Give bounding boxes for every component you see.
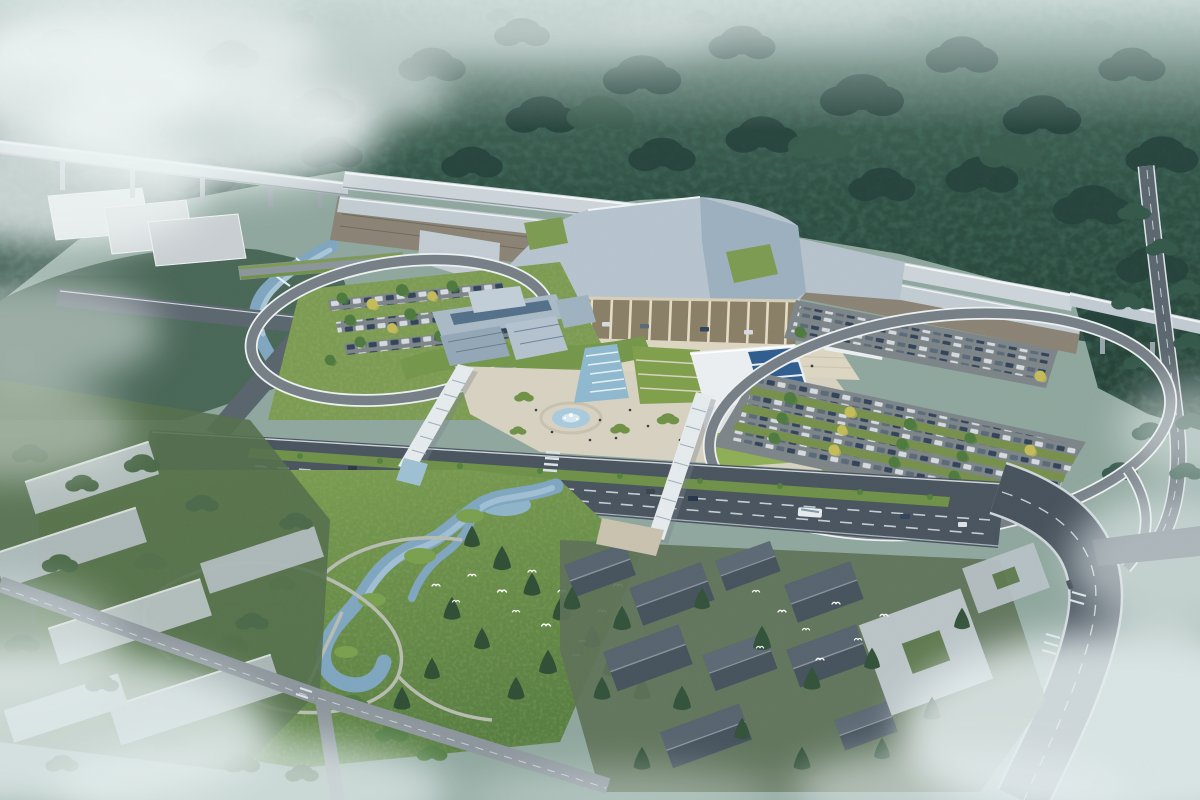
architectural-rendering: Aerial architectural rendering of a high… bbox=[0, 0, 1200, 800]
film-grain bbox=[0, 0, 1200, 800]
aerial-scene: Aerial architectural rendering of a high… bbox=[0, 0, 1200, 800]
